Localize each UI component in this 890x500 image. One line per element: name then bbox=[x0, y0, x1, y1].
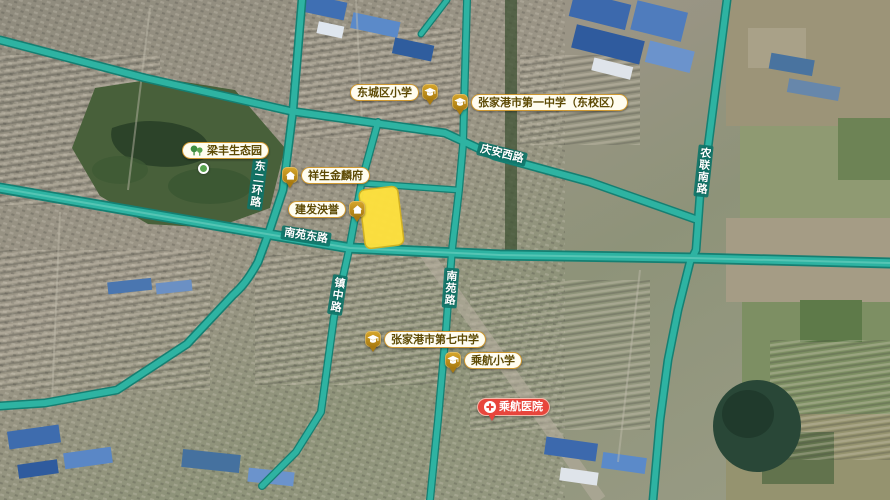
poi-xiangsheng-jinlinfu[interactable]: 祥生金麟府 bbox=[282, 167, 370, 184]
poi-no7-middle[interactable]: 张家港市第七中学 bbox=[365, 331, 486, 348]
poi-jianfa-yangyu[interactable]: 建发泱誉 bbox=[288, 201, 365, 218]
poi-pill: 祥生金麟府 bbox=[301, 167, 370, 184]
school-icon bbox=[365, 331, 381, 347]
poi-liangfeng-park[interactable]: 梁丰生态园 bbox=[182, 142, 269, 159]
poi-pill: 建发泱誉 bbox=[288, 201, 346, 218]
poi-pill: 乘航医院 bbox=[477, 398, 550, 416]
road-label-nanyuan: 南苑路 bbox=[442, 268, 460, 309]
poi-no1-middle[interactable]: 张家港市第一中学（东校区） bbox=[452, 94, 628, 111]
residence-icon bbox=[282, 167, 298, 183]
school-icon bbox=[422, 84, 438, 100]
school-icon bbox=[445, 352, 461, 368]
poi-dongcheng-primary[interactable]: 东城区小学 bbox=[350, 84, 438, 101]
poi-pill: 梁丰生态园 bbox=[182, 142, 269, 159]
canal bbox=[505, 0, 517, 258]
residence-icon bbox=[349, 201, 365, 217]
poi-pill: 张家港市第一中学（东校区） bbox=[471, 94, 628, 111]
poi-pill: 东城区小学 bbox=[350, 84, 419, 101]
satellite-basemap[interactable] bbox=[0, 0, 890, 500]
pond bbox=[713, 380, 801, 472]
poi-label-text: 乘航医院 bbox=[499, 399, 543, 415]
school-icon bbox=[452, 94, 468, 110]
poi-pill: 乘航小学 bbox=[464, 352, 522, 369]
park-anchor-dot bbox=[198, 163, 209, 174]
parcel-highlight bbox=[358, 186, 404, 249]
poi-label-text: 梁丰生态园 bbox=[207, 143, 262, 158]
map-container[interactable]: 庆安西路 南苑东路 东二环路 镇中路 南苑路 农联南路 东城区小学 张家港市第一… bbox=[0, 0, 890, 500]
park-trees-icon bbox=[189, 144, 204, 157]
poi-pill: 张家港市第七中学 bbox=[384, 331, 486, 348]
poi-chenghang-primary[interactable]: 乘航小学 bbox=[445, 352, 522, 369]
hospital-cross-icon bbox=[484, 401, 496, 413]
poi-chenghang-hospital[interactable]: 乘航医院 bbox=[477, 398, 550, 416]
label-pointer bbox=[488, 414, 496, 421]
